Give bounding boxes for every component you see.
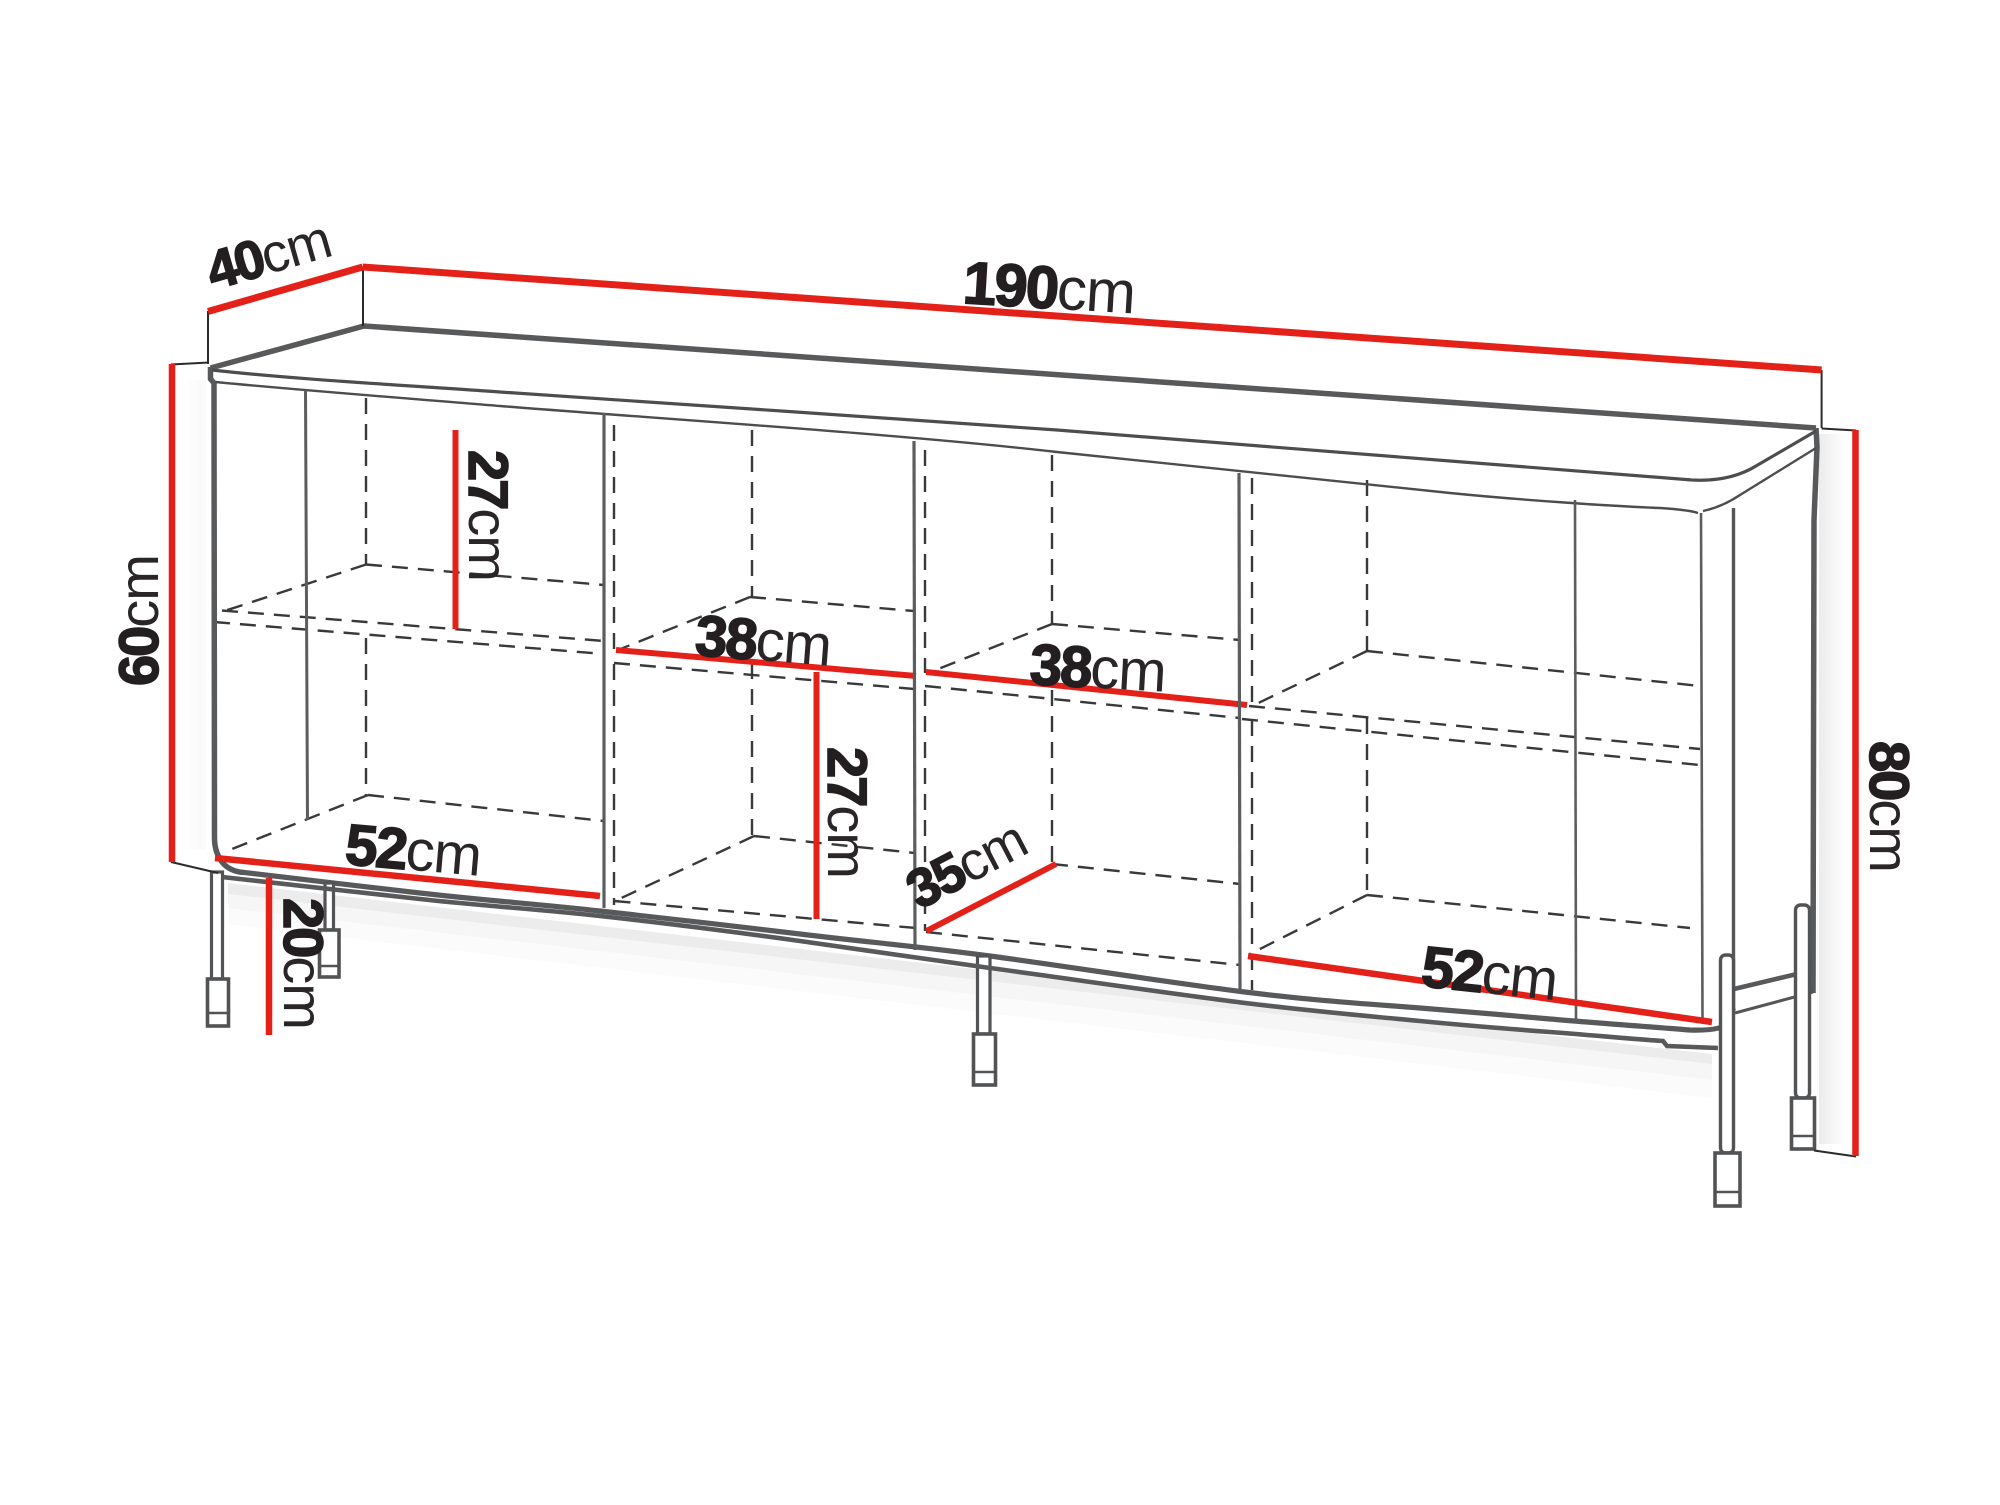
svg-text:190cm: 190cm — [961, 249, 1137, 326]
svg-text:20cm: 20cm — [272, 898, 335, 1029]
svg-text:52cm: 52cm — [343, 812, 484, 889]
svg-text:60cm: 60cm — [107, 555, 170, 686]
svg-text:80cm: 80cm — [1858, 741, 1921, 872]
svg-text:38cm: 38cm — [1028, 632, 1167, 704]
svg-text:38cm: 38cm — [693, 603, 834, 678]
svg-text:27cm: 27cm — [816, 747, 879, 878]
svg-text:27cm: 27cm — [457, 450, 520, 581]
